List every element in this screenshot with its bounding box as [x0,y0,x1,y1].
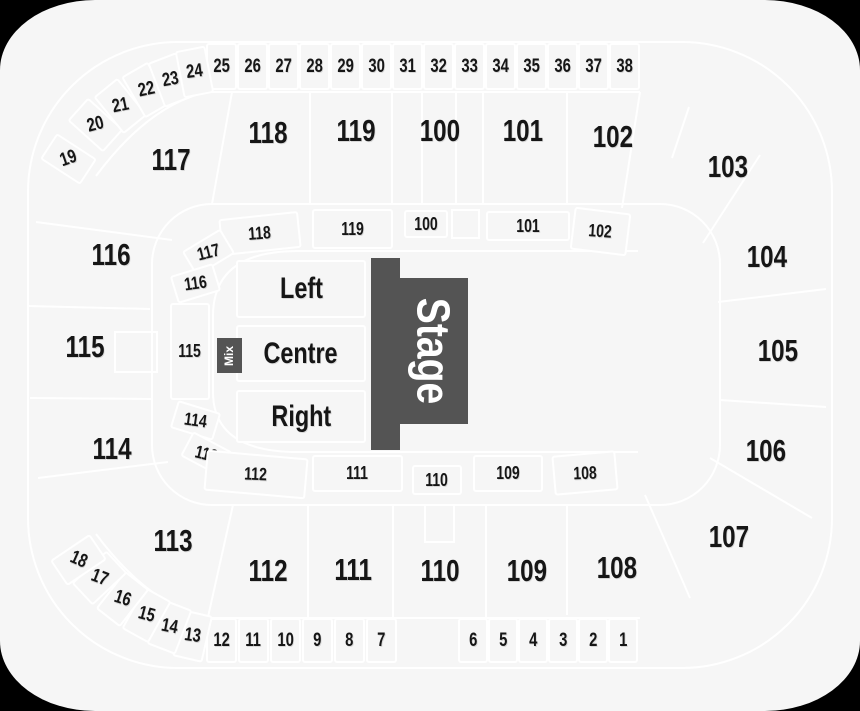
section-small-21-label: 21 [110,94,131,119]
section-102-label: 102 [593,119,633,155]
section-inner-110-label: 110 [426,470,449,491]
section-small-29-label: 29 [337,56,353,78]
section-inner-110[interactable]: 110 [412,465,462,495]
section-small-28[interactable]: 28 [299,43,330,90]
section-115-label: 115 [65,329,104,365]
section-small-7[interactable]: 7 [366,618,397,663]
section-small-23-label: 23 [160,68,180,93]
stage-shape [371,258,400,450]
section-small-31-label: 31 [399,56,415,78]
section-small-7-label: 7 [377,630,385,652]
section-small-37-label: 37 [585,56,601,78]
stage-label: Stage [407,298,461,404]
section-114-label: 114 [92,431,131,467]
section-small-32-label: 32 [430,56,446,78]
section-small-4[interactable]: 4 [518,618,548,663]
section-small-5[interactable]: 5 [488,618,518,663]
section-inner-115-label: 115 [179,341,202,362]
section-118-label: 118 [248,115,287,151]
section-115[interactable]: 115 [45,330,125,364]
section-small-10[interactable]: 10 [270,618,301,663]
floor-section-right[interactable]: Right [236,390,366,443]
section-113[interactable]: 113 [133,524,213,558]
section-small-28-label: 28 [306,56,322,78]
section-109-label: 109 [507,553,547,589]
section-small-30[interactable]: 30 [361,43,392,90]
section-small-37[interactable]: 37 [578,43,609,90]
section-small-4-label: 4 [529,630,537,652]
section-116-label: 116 [91,237,130,273]
section-small-35-label: 35 [523,56,539,78]
section-inner-100-label: 100 [414,214,437,235]
section-inner-101[interactable]: 101 [486,211,570,241]
section-108-label: 108 [597,550,637,586]
section-small-27[interactable]: 27 [268,43,299,90]
section-110-label: 110 [420,553,459,589]
divider-line [718,289,826,302]
section-inner-100[interactable]: 100 [404,210,448,238]
section-small-8-label: 8 [345,630,353,652]
section-small-1-label: 1 [619,630,627,652]
section-small-11[interactable]: 11 [238,618,269,663]
section-119[interactable]: 119 [316,114,396,148]
section-101-label: 101 [503,113,543,149]
section-small-38[interactable]: 38 [609,43,640,90]
section-inner-109[interactable]: 109 [473,455,543,492]
arena-seating-map: 25 26 27 28 29 30 31 32 33 34 35 36 37 3… [0,0,860,711]
section-112-label: 112 [248,553,287,589]
section-small-26[interactable]: 26 [237,43,268,90]
section-inner-109-label: 109 [496,463,519,484]
section-small-29[interactable]: 29 [330,43,361,90]
section-small-2[interactable]: 2 [578,618,608,663]
section-inner-117-label: 117 [195,240,222,266]
section-small-26-label: 26 [244,56,260,78]
section-103[interactable]: 103 [688,150,768,184]
section-inner-118-label: 118 [248,222,272,245]
floor-section-centre-label: Centre [264,337,338,371]
section-inner-115[interactable]: 115 [170,303,210,400]
section-small-8[interactable]: 8 [334,618,365,663]
section-105-label: 105 [758,333,798,369]
section-117[interactable]: 117 [131,143,211,177]
mix-label: Mix [222,345,236,365]
section-small-34-label: 34 [492,56,508,78]
section-inner-119-label: 119 [341,219,364,240]
section-100[interactable]: 100 [400,114,480,148]
section-inner-111[interactable]: 111 [312,455,403,492]
floor-section-left-label: Left [280,272,323,306]
section-small-11-label: 11 [246,630,262,652]
section-inner-112-label: 112 [244,464,267,486]
section-small-24-label: 24 [185,60,204,84]
section-110-notch [425,505,454,542]
section-small-12-label: 12 [213,630,229,652]
section-small-20-label: 20 [85,112,107,138]
section-small-30-label: 30 [368,56,384,78]
section-inner-102[interactable]: 102 [570,207,632,257]
floor-section-right-label: Right [271,400,331,434]
section-103-label: 103 [708,149,748,185]
section-small-5-label: 5 [499,630,507,652]
section-inner-108[interactable]: 108 [551,450,618,495]
floor-section-centre[interactable]: Centre [236,325,366,382]
stage: Stage [400,278,468,424]
section-small-38-label: 38 [616,56,632,78]
section-119-label: 119 [336,113,375,149]
section-small-32[interactable]: 32 [423,43,454,90]
section-117-label: 117 [151,142,190,178]
section-114[interactable]: 114 [72,432,152,466]
section-111[interactable]: 111 [313,553,393,587]
section-small-15-label: 15 [136,602,158,628]
section-112[interactable]: 112 [228,554,308,588]
section-106-label: 106 [746,433,786,469]
section-small-6[interactable]: 6 [458,618,488,663]
section-110[interactable]: 110 [400,554,480,588]
section-106[interactable]: 106 [726,434,806,468]
section-inner-116-label: 116 [183,272,208,296]
section-104-label: 104 [747,239,787,275]
section-107-label: 107 [709,519,749,555]
section-small-2-label: 2 [589,630,597,652]
section-small-19-label: 19 [57,146,80,172]
section-113-label: 113 [153,523,192,559]
section-small-16-label: 16 [111,586,133,612]
section-inner-101-label: 101 [516,216,539,237]
section-101[interactable]: 101 [483,114,563,148]
section-small-27-label: 27 [275,56,291,78]
section-inner-111-label: 111 [347,463,369,484]
divider-line [30,398,152,399]
section-107[interactable]: 107 [689,520,769,554]
section-small-6-label: 6 [469,630,477,652]
section-108[interactable]: 108 [577,551,657,585]
section-111-label: 111 [334,552,372,588]
section-small-3[interactable]: 3 [548,618,578,663]
section-small-9[interactable]: 9 [302,618,333,663]
section-105[interactable]: 105 [738,334,818,368]
section-small-35[interactable]: 35 [516,43,547,90]
section-small-36-label: 36 [554,56,570,78]
section-inner-102-label: 102 [588,220,613,243]
section-small-31[interactable]: 31 [392,43,423,90]
section-small-33-label: 33 [461,56,477,78]
section-small-1[interactable]: 1 [608,618,638,663]
section-small-33[interactable]: 33 [454,43,485,90]
section-small-9-label: 9 [313,630,321,652]
section-small-34[interactable]: 34 [485,43,516,90]
divider-line [720,400,826,407]
section-small-10-label: 10 [277,630,293,652]
section-118[interactable]: 118 [228,116,308,150]
section-small-18-label: 18 [66,547,90,574]
section-small-25-label: 25 [213,56,229,78]
section-small-3-label: 3 [559,630,567,652]
divider-line [28,306,150,309]
unlabeled-inner-box [452,210,479,238]
section-100-label: 100 [420,113,460,149]
section-104[interactable]: 104 [727,240,807,274]
section-inner-112[interactable]: 112 [203,450,308,500]
section-small-36[interactable]: 36 [547,43,578,90]
section-116[interactable]: 116 [71,238,151,272]
floor-section-left[interactable]: Left [236,260,366,318]
section-109[interactable]: 109 [487,554,567,588]
section-inner-114-label: 114 [183,409,208,433]
mix-position: Mix [217,338,242,373]
divider-line [672,107,689,158]
section-inner-108-label: 108 [573,462,597,484]
section-inner-119[interactable]: 119 [312,209,393,249]
section-102[interactable]: 102 [573,120,653,154]
